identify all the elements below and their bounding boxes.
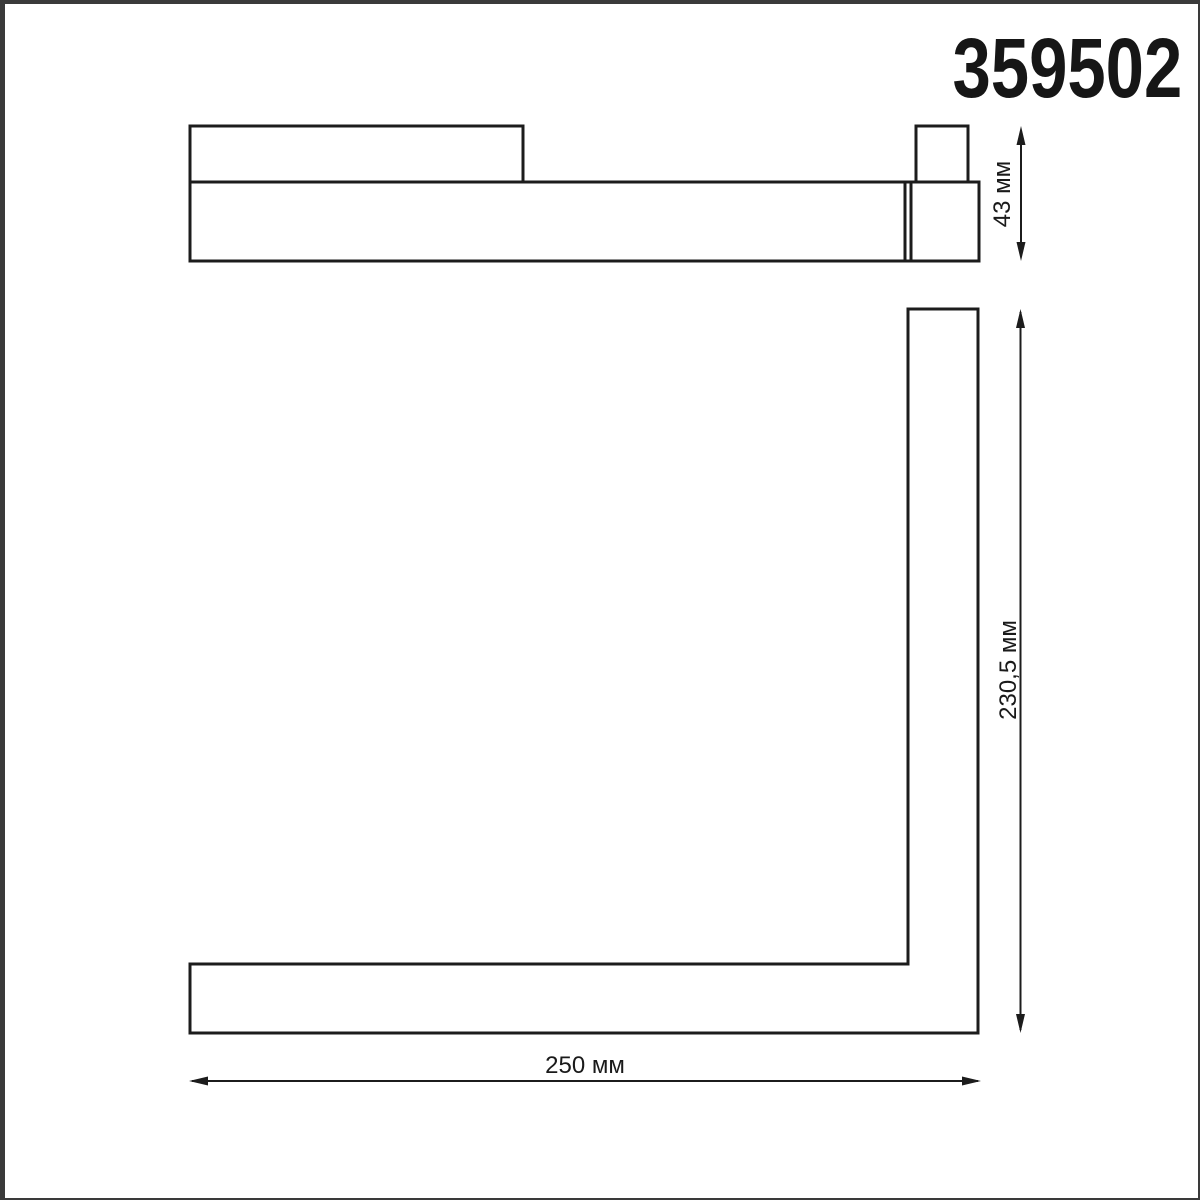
arrow-up-icon <box>1016 309 1025 328</box>
dimension-label-width: 250 мм <box>545 1054 625 1078</box>
arrow-down-icon <box>1017 242 1026 261</box>
side-view-right-block <box>916 126 968 182</box>
arrow-up-icon <box>1017 126 1026 145</box>
dimension-label-depth: 230,5 мм <box>997 620 1021 720</box>
arrow-down-icon <box>1016 1014 1025 1033</box>
side-view-main-bar <box>190 182 979 261</box>
front-view <box>190 309 978 1033</box>
technical-drawing <box>5 4 1200 1200</box>
drawing-page: 359502 <box>0 0 1200 1200</box>
side-view-left-block <box>190 126 523 182</box>
dimension-label-height: 43 мм <box>991 161 1015 227</box>
arrow-right-icon <box>962 1077 981 1086</box>
side-view <box>190 126 979 261</box>
arrow-left-icon <box>189 1077 208 1086</box>
front-view-l-profile <box>190 309 978 1033</box>
dimension-height-43 <box>1017 126 1026 261</box>
